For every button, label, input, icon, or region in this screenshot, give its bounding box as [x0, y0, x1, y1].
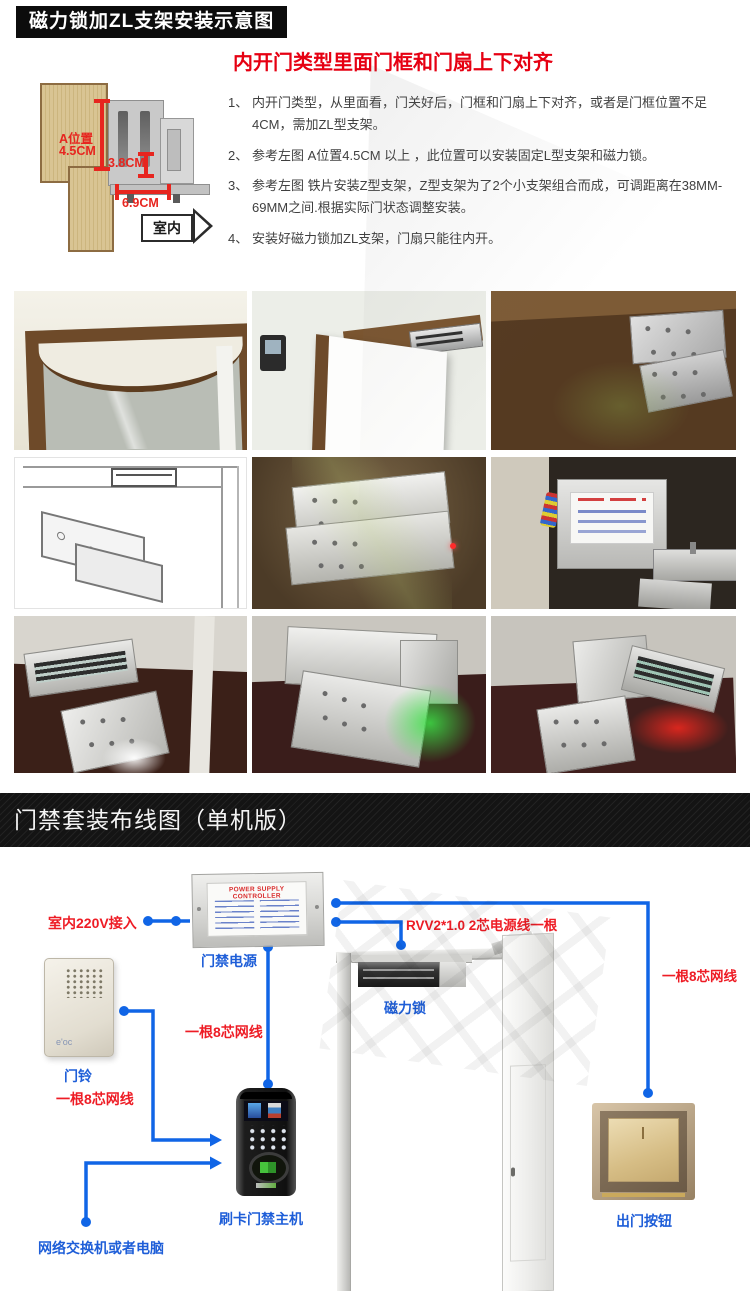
power-supply-label-panel: POWER SUPPLY CONTROLLER	[207, 881, 308, 937]
host-label: 刷卡门禁主机	[219, 1209, 303, 1229]
wiring-diagram: POWER SUPPLY CONTROLLER e'oc	[0, 847, 750, 1291]
network-label: 网络交换机或者电脑	[38, 1238, 164, 1258]
photo-shape	[312, 334, 447, 450]
host-fingerprint-reader	[249, 1152, 289, 1184]
exit-button-mark	[642, 1127, 644, 1139]
instruction-number: 2、	[228, 145, 252, 167]
maglock-label: 磁力锁	[384, 998, 426, 1018]
host-logo	[256, 1183, 276, 1188]
magnetic-lock	[358, 962, 466, 987]
photo-open-door-maglock	[252, 291, 486, 450]
instruction-text: 内开门类型，从里面看，门关好后，门框和门扇上下对齐，或者是门框位置不足4CM，需…	[252, 92, 743, 136]
page: 磁力锁加ZL支架安装示意图 内开门类型里面门框和门扇上下对齐 1、 内开门类型，…	[0, 0, 750, 1291]
installation-photo-grid	[14, 291, 736, 773]
photo-shape	[221, 466, 223, 609]
photo-shape	[237, 466, 239, 609]
photo-shape	[84, 391, 174, 449]
photo-shape	[653, 549, 736, 581]
cable8-mid-label: 一根8芯网线	[185, 1022, 263, 1042]
rvv-cable-label: RVV2*1.0 2芯电源线一根	[406, 914, 557, 934]
dimension-line-a	[100, 99, 104, 171]
power-supply-controller: POWER SUPPLY CONTROLLER	[191, 872, 324, 948]
photo-zl-bracket-closeup	[491, 291, 736, 450]
photo-shape	[557, 479, 667, 569]
instruction-item: 2、 参考左图 A位置4.5CM 以上 ，此位置可以安装固定L型支架和磁力锁。	[228, 145, 743, 167]
photo-installed-lock-green-led	[252, 616, 486, 773]
instruction-item: 1、 内开门类型，从里面看，门关好后，门框和门扇上下对齐，或者是门框位置不足4C…	[228, 92, 743, 136]
indoor-arrow-icon	[193, 208, 213, 244]
photo-shape	[536, 695, 635, 773]
power-supply-spec-text	[215, 900, 255, 931]
doorbell-speaker-holes	[65, 968, 105, 998]
photo-shape	[380, 680, 480, 766]
doorbell-label: 门铃	[64, 1066, 92, 1086]
host-keypad	[245, 1125, 287, 1151]
instruction-text: 参考左图 A位置4.5CM 以上 ，此位置可以安装固定L型支架和磁力锁。	[252, 145, 743, 167]
l-bracket-drawing	[160, 118, 194, 184]
mains-label: 室内220V接入	[48, 913, 137, 933]
host-screen	[244, 1101, 288, 1121]
zl-bracket-drawing	[108, 100, 164, 186]
photo-shape	[260, 335, 286, 371]
doorbell: e'oc	[44, 958, 114, 1057]
door-frame-left	[337, 953, 351, 1291]
instruction-item: 4、 安装好磁力锁加ZL支架，门扇只能往内开。	[228, 228, 743, 250]
indoor-arrow-label: 室内	[141, 214, 193, 242]
exit-button-device	[592, 1103, 695, 1200]
dimension-c-value: 6.9CM	[122, 196, 159, 210]
photo-shape	[638, 579, 712, 609]
photo-installed-lock	[14, 616, 247, 773]
instruction-list: 1、 内开门类型，从里面看，门关好后，门框和门扇上下对齐，或者是门框位置不足4C…	[228, 92, 743, 259]
photo-shape	[102, 738, 166, 773]
watermark	[292, 457, 452, 609]
section-banner: 门禁套装布线图（单机版）	[0, 793, 750, 847]
dimension-line-c	[115, 190, 171, 194]
photo-bracket-kit	[252, 457, 486, 609]
section-heading: 内开门类型里面门框和门扇上下对齐	[233, 46, 553, 75]
exit-button-strip	[602, 1193, 685, 1197]
access-control-host	[236, 1088, 296, 1196]
dimension-a-value: 4.5CM	[59, 144, 96, 158]
cable8-left-label: 一根8芯网线	[56, 1089, 134, 1109]
photo-shape	[491, 457, 549, 609]
photo-installed-lock-red-led	[491, 616, 736, 773]
instruction-text: 参考左图 铁片安装Z型支架，Z型支架为了2个小支架组合而成，可调距离在38MM-…	[252, 175, 743, 219]
photo-shape	[111, 468, 177, 487]
photo-line-drawing-bracket	[14, 457, 247, 609]
installation-measure-diagram: A位置 4.5CM 3.8CM 6.9CM 室内	[40, 78, 215, 256]
power-supply-spec-text	[260, 899, 300, 930]
psu-label: 门禁电源	[201, 951, 257, 971]
instruction-number: 3、	[228, 175, 252, 219]
instruction-number: 4、	[228, 228, 252, 250]
host-top-band	[240, 1092, 292, 1099]
photo-power-supply	[491, 457, 736, 609]
cable8-right-label: 一根8芯网线	[662, 965, 737, 985]
exit-button-label: 出门按钮	[616, 1211, 672, 1231]
photo-wooden-arch-frame	[14, 291, 247, 450]
watermark	[551, 361, 691, 450]
dimension-b-value: 3.8CM	[108, 156, 145, 170]
open-door-leaf	[502, 933, 554, 1291]
section-banner-title: 门禁套装布线图（单机版）	[14, 793, 302, 847]
page-title: 磁力锁加ZL支架安装示意图	[16, 6, 287, 38]
instruction-text: 安装好磁力锁加ZL支架，门扇只能往内开。	[252, 228, 743, 250]
instruction-number: 1、	[228, 92, 252, 136]
instruction-item: 3、 参考左图 铁片安装Z型支架，Z型支架为了2个小支架组合而成，可调距离在38…	[228, 175, 743, 219]
photo-shape	[623, 700, 733, 756]
doorbell-brand: e'oc	[56, 1037, 72, 1047]
